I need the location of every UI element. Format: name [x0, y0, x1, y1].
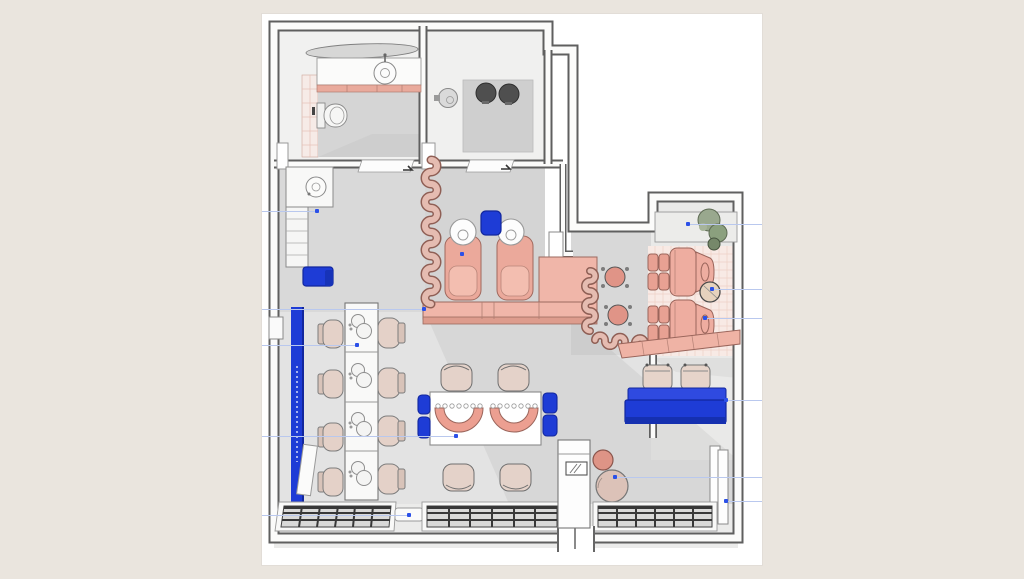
marker-entrance-mat[interactable] [407, 513, 411, 517]
wall-bracket [434, 95, 440, 101]
pouf-large [596, 470, 628, 502]
waiting-chair [643, 364, 672, 391]
washer-icon [476, 83, 496, 103]
card-reader[interactable] [566, 462, 587, 475]
wall-pilaster [269, 317, 283, 339]
toilet [312, 103, 347, 128]
storage-cabinet [286, 207, 308, 267]
waiting-chair [681, 364, 710, 391]
blue-sofa [625, 388, 726, 424]
marker-wash-station[interactable] [460, 252, 464, 256]
pouf-small [593, 450, 613, 470]
marker-reception-counter[interactable] [422, 307, 426, 311]
wash-basin [498, 219, 524, 245]
entry-column [558, 440, 590, 528]
tech-chair [378, 318, 405, 348]
blue-stool [481, 211, 501, 235]
marker-pedicure-chair[interactable] [703, 316, 707, 320]
bathroom-niche [277, 143, 288, 169]
marker-lounge-shelf[interactable] [686, 222, 690, 226]
marker-pouf[interactable] [613, 475, 617, 479]
bathroom-sink [374, 62, 396, 84]
floor-plan-drawing [262, 14, 762, 565]
client-chair [318, 320, 343, 348]
counter-edge [317, 85, 421, 92]
laundry-sink [439, 89, 458, 108]
marker-blue-sofa[interactable] [724, 398, 728, 402]
door-panel [718, 450, 728, 524]
marker-nail-table[interactable] [454, 434, 458, 438]
bathroom-counter [317, 58, 421, 85]
table-chair [441, 364, 472, 391]
dryer-icon [499, 84, 519, 104]
app-background [0, 0, 1024, 579]
flush-button [312, 107, 315, 115]
marker-door-panel[interactable] [724, 499, 728, 503]
marker-manicure-bar[interactable] [355, 343, 359, 347]
floor-plan-canvas[interactable] [262, 14, 762, 565]
wash-basin [450, 219, 476, 245]
marker-side-table[interactable] [710, 287, 714, 291]
marker-storage-cabinet[interactable] [315, 209, 319, 213]
